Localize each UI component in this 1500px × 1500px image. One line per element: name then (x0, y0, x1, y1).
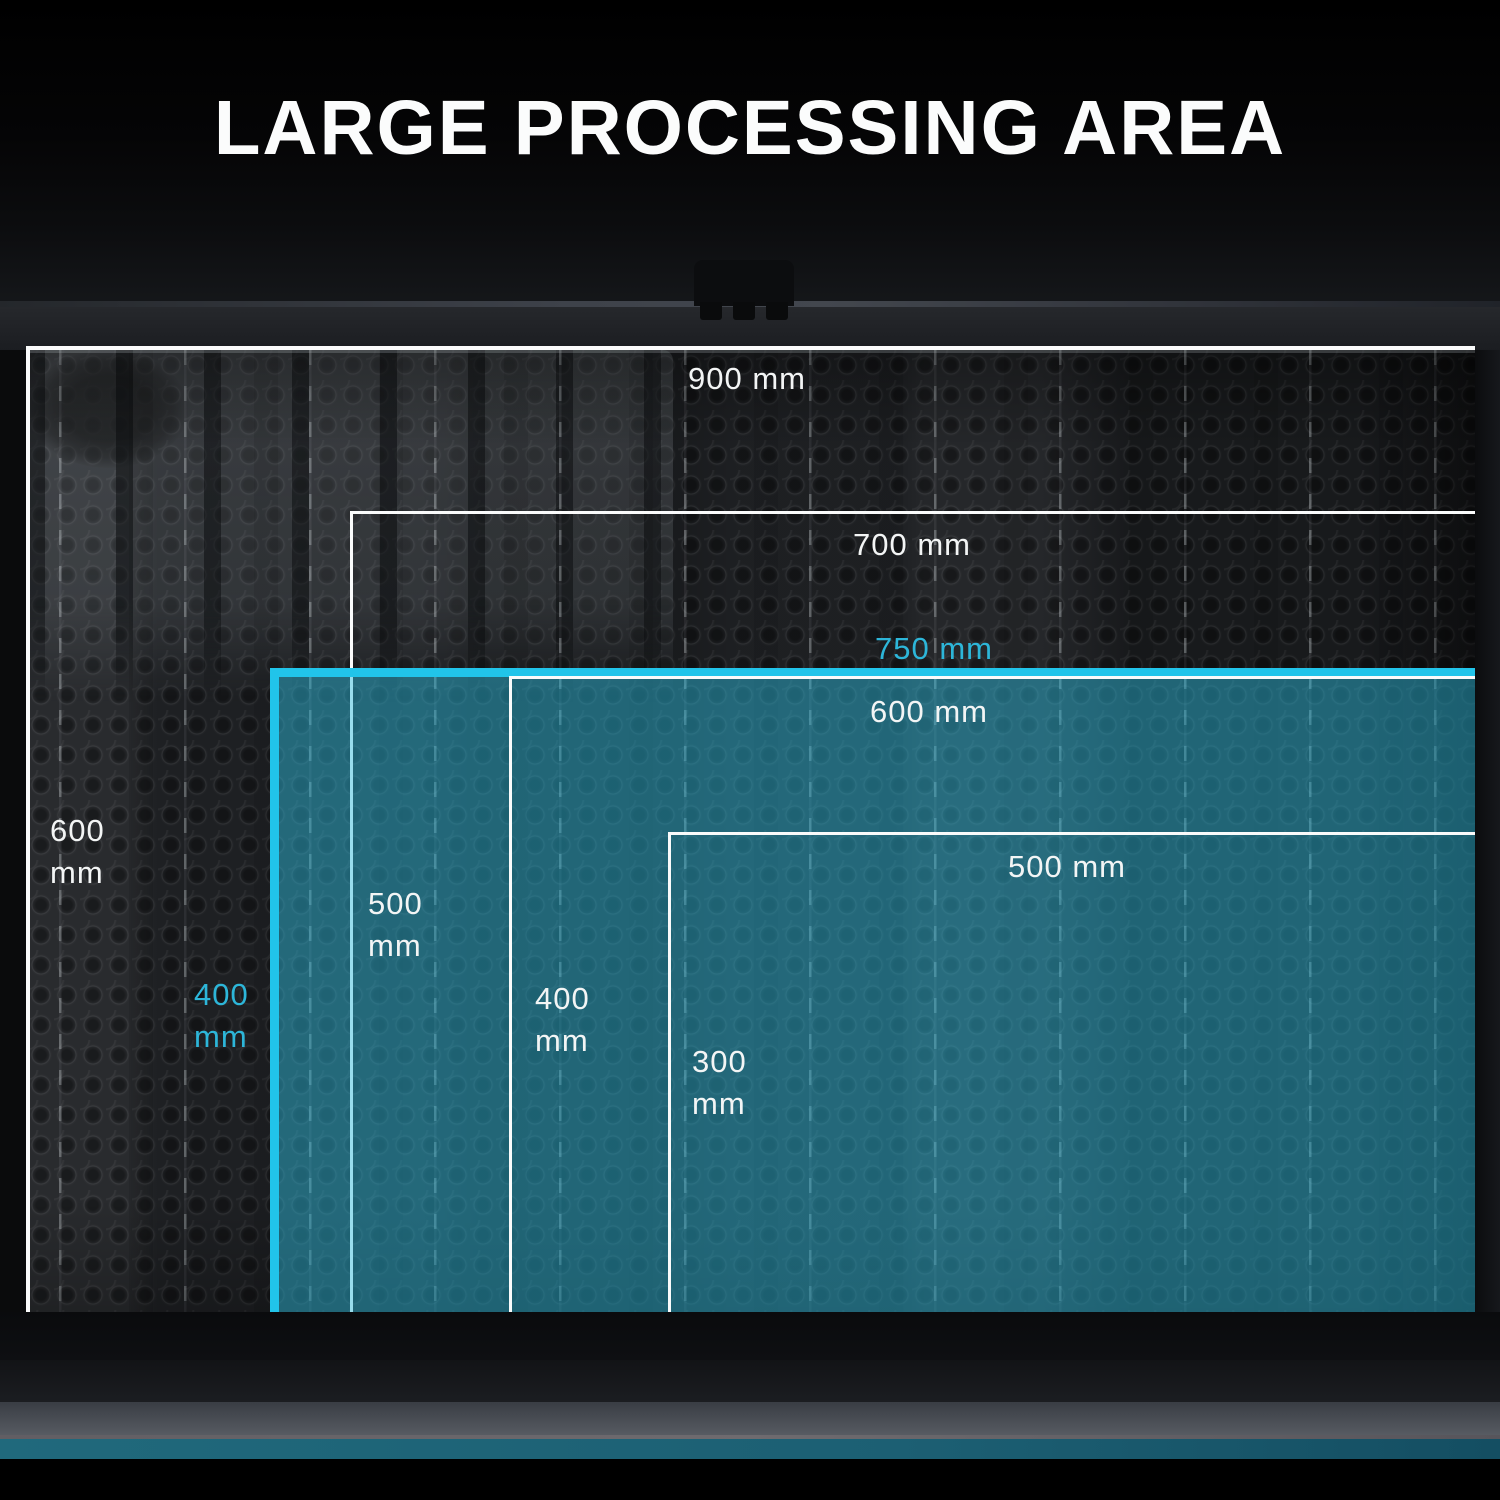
height-label-400mm: 400 mm (535, 978, 623, 1062)
height-label-300mm: 300 mm (692, 1041, 780, 1125)
width-label-700mm: 700 mm (853, 524, 971, 566)
bed-right-shadow (1475, 350, 1500, 1312)
machine-front-dark-panel (0, 1360, 1500, 1402)
outline-area-500x300 (668, 832, 1475, 1312)
width-label-900mm: 900 mm (688, 358, 806, 400)
width-label-750mm-highlight: 750 mm (875, 628, 993, 670)
bed-left-shadow (0, 350, 28, 1312)
accent-strip (0, 1439, 1500, 1459)
height-label-500mm: 500 mm (368, 883, 456, 967)
hinge-foot (700, 302, 722, 320)
height-label-600mm: 600 mm (50, 810, 138, 894)
hinge-foot (733, 302, 755, 320)
height-label-400mm-highlight: 400 mm (194, 974, 282, 1058)
width-label-600mm: 600 mm (870, 691, 988, 733)
bottom-black-base (0, 1459, 1500, 1500)
lid-hinge-tab (694, 260, 794, 306)
machine-front-recess (0, 1312, 1500, 1360)
hinge-foot (766, 302, 788, 320)
machine-front-gray-panel (0, 1402, 1500, 1435)
product-size-comparison-graphic: LARGE PROCESSING AREA 900 mm 700 mm 750 … (0, 0, 1500, 1500)
width-label-500mm: 500 mm (1008, 846, 1126, 888)
page-title: LARGE PROCESSING AREA (8, 84, 1493, 173)
